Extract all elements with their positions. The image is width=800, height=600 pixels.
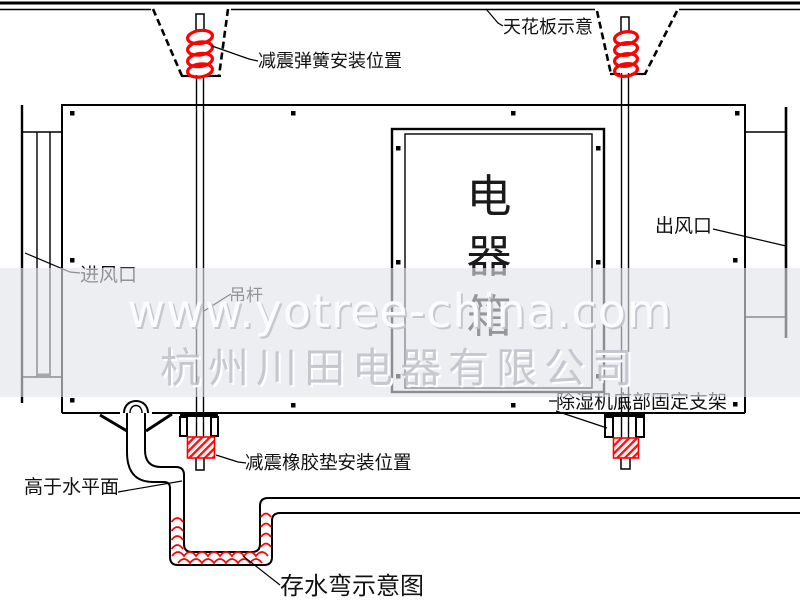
trap-water [172, 514, 272, 564]
ceiling-slab [0, 3, 800, 10]
watermark-company: 杭州川田电器有限公司 [160, 344, 640, 392]
rubber-pad-right [614, 438, 639, 458]
leader-water-trap [243, 556, 280, 585]
hanger-cup-right [597, 11, 677, 74]
installation-diagram: 电 器 箱 [0, 0, 800, 600]
drain-pipe [100, 401, 800, 565]
damping-spring-left-icon [187, 29, 214, 79]
label-above-water-level: 高于水平面 [24, 476, 119, 498]
label-rubber-pad-position: 减震橡胶垫安装位置 [245, 453, 412, 474]
watermark: www.yotree-china.com www.yotree-china.co… [0, 268, 800, 397]
label-spring-position: 减震弹簧安装位置 [258, 51, 402, 72]
damping-spring-right-icon [614, 30, 639, 77]
leader-ceiling [486, 9, 503, 26]
bottom-bracket-right [604, 412, 645, 458]
electric-box-char-1: 电 [466, 170, 511, 223]
installation-diagram-page: 电 器 箱 [0, 0, 800, 600]
rubber-pad-left [188, 437, 215, 458]
label-water-trap: 存水弯示意图 [280, 572, 424, 600]
bottom-bracket-left [180, 412, 218, 458]
label-ceiling: 天花板示意 [503, 17, 593, 38]
leader-rubber-pad [216, 455, 246, 463]
watermark-url: www.yotree-china.com [127, 284, 672, 338]
leader-spring [212, 46, 258, 61]
label-air-outlet: 出风口 [655, 215, 712, 237]
